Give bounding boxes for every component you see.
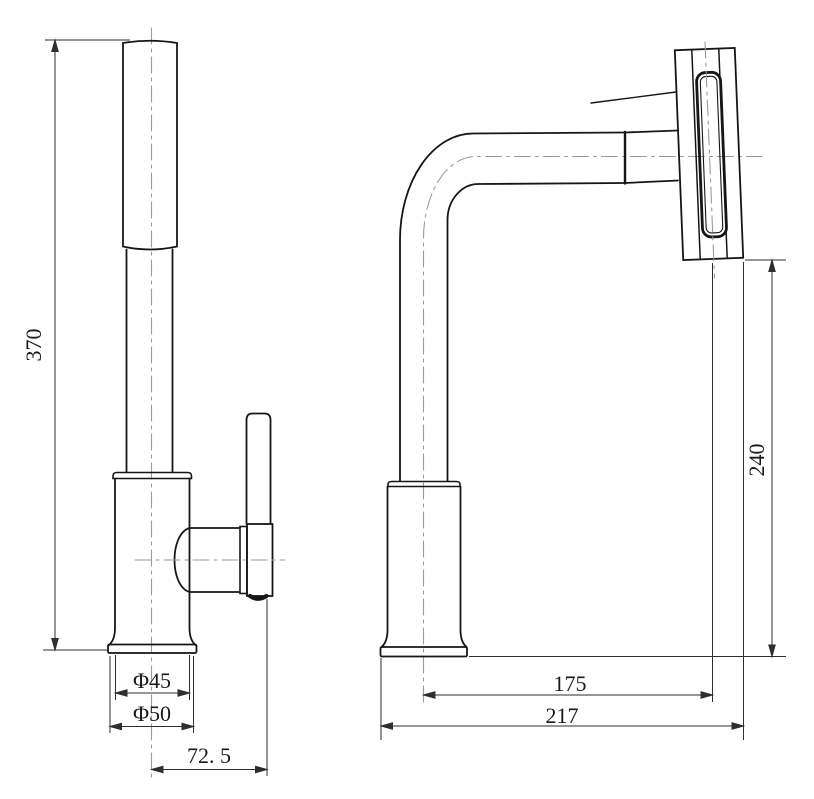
arrow-right [178, 690, 190, 696]
arrow-left [116, 690, 128, 696]
spray-head-centerline [705, 42, 714, 278]
arrow-right [732, 723, 744, 729]
riser-tube [127, 250, 173, 473]
dim-240: 240 [469, 260, 786, 657]
spray-head-front [675, 41, 744, 279]
arrow-right [182, 723, 194, 729]
spray-head-side [123, 41, 177, 250]
front-view-dimensions: 175 217 240 [381, 260, 786, 740]
dim-370-label: 370 [21, 329, 46, 362]
arrow-down [769, 645, 775, 657]
faucet-technical-drawing-page: 370 Φ45 Φ50 72. 5 [0, 0, 814, 799]
arrow-down [52, 639, 58, 651]
base-flange [108, 645, 197, 654]
dim-217: 217 [381, 262, 744, 740]
arrow-left [381, 723, 393, 729]
dim-45-label: Φ45 [133, 668, 171, 693]
body-collar [113, 473, 192, 479]
spray-head-outline [675, 48, 743, 260]
arrow-right [256, 766, 268, 772]
arrow-left [152, 766, 164, 772]
handle-lever [247, 414, 271, 525]
dim-175: 175 [424, 263, 713, 702]
arrow-up [52, 40, 58, 52]
front-view [381, 41, 763, 702]
dim-72-5-label: 72. 5 [187, 743, 231, 768]
arrow-right [701, 692, 713, 698]
dim-50-label: Φ50 [133, 701, 171, 726]
spout-inner-edge [448, 183, 626, 481]
dim-175-label: 175 [554, 671, 587, 696]
dim-370: 370 [21, 40, 130, 650]
arrow-left [424, 692, 436, 698]
arrow-up [769, 260, 775, 272]
side-view-dimensions: 370 Φ45 Φ50 72. 5 [21, 40, 267, 776]
holder-bracket-line [591, 92, 676, 103]
dim-240-label: 240 [744, 444, 769, 477]
spout-outer-edge [400, 133, 625, 482]
dim-217-label: 217 [546, 703, 579, 728]
dim-45: Φ45 [116, 655, 190, 700]
mounting-body [109, 479, 196, 646]
arrow-left [110, 723, 122, 729]
faucet-technical-drawing: 370 Φ45 Φ50 72. 5 [0, 0, 814, 799]
